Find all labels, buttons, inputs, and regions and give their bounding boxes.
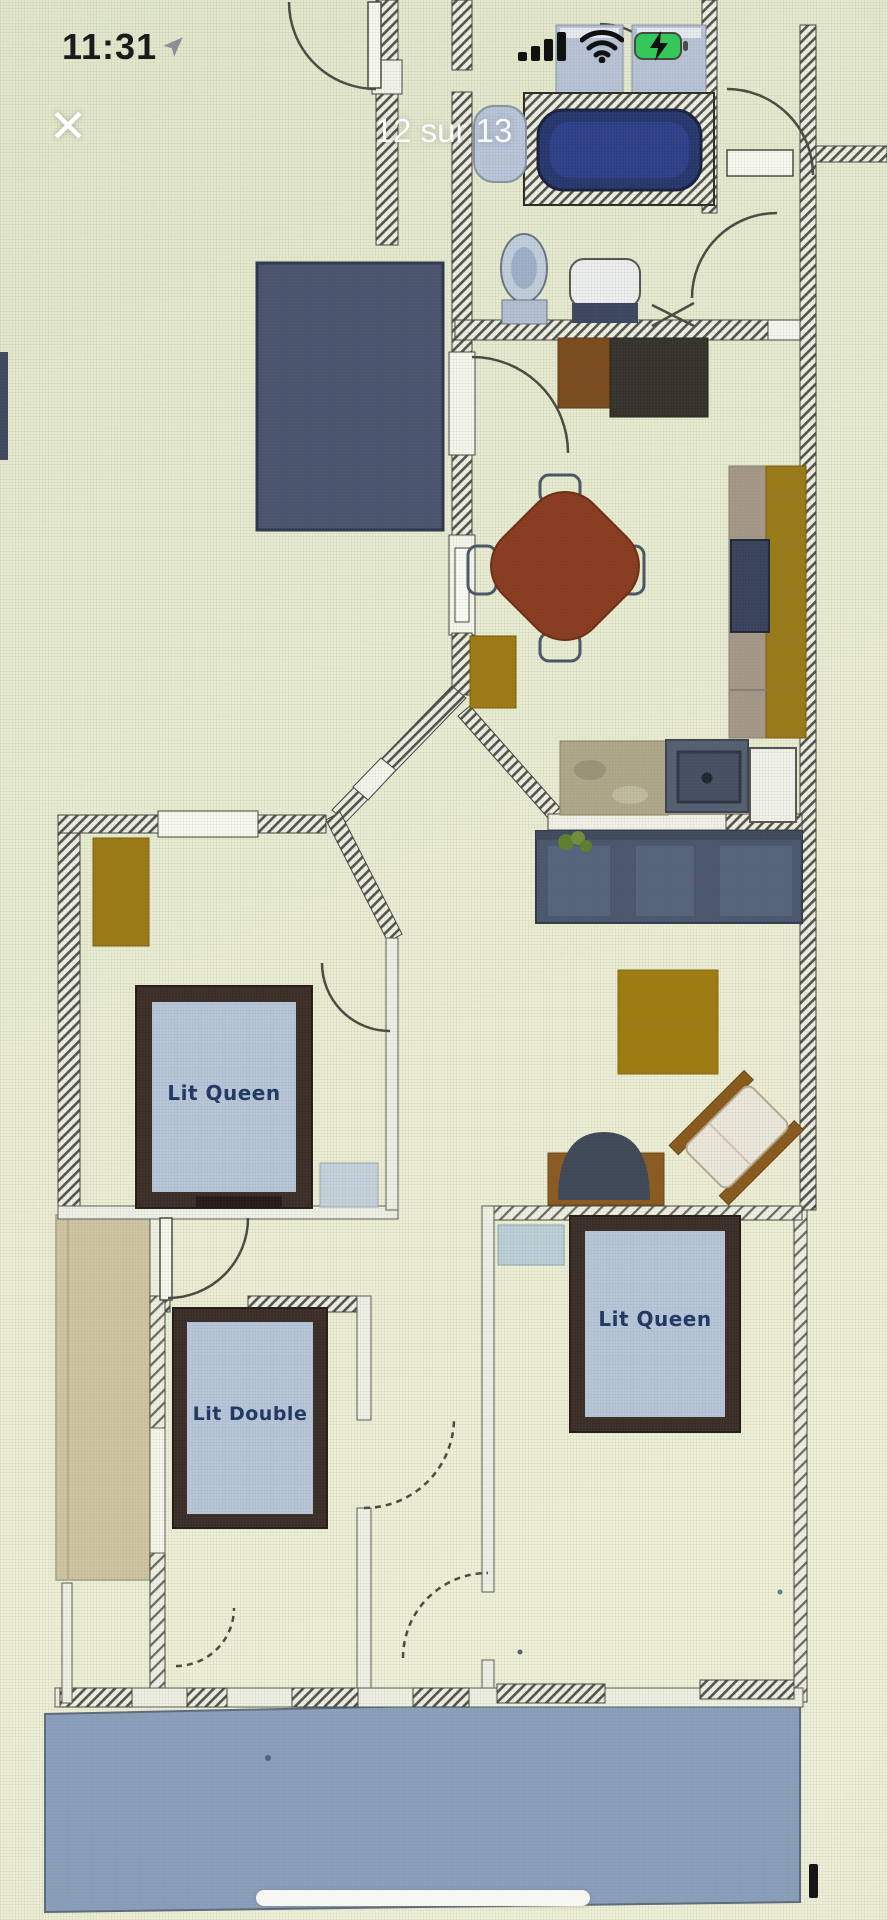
bedroom-2: Lit Queen [498, 1216, 740, 1432]
bed-3-label: Lit Double [193, 1403, 308, 1425]
bed-1-label: Lit Queen [167, 1081, 280, 1105]
wifi-icon [580, 29, 624, 63]
dining-table [474, 475, 655, 656]
lounge-corner [548, 970, 803, 1205]
location-arrow-icon [160, 34, 186, 60]
nightstand-2 [498, 1225, 564, 1265]
desk-chair [558, 1132, 650, 1200]
toilet-tank [502, 300, 547, 324]
status-bar: 11:31 [0, 0, 887, 90]
bedside-shelf [320, 1163, 378, 1207]
tv-screen [731, 540, 769, 632]
floor-plan-image: Lit Queen Lit Queen Lit Double [0, 0, 887, 1920]
scroll-indicator [809, 1864, 818, 1898]
bed-2-label: Lit Queen [598, 1307, 711, 1331]
status-time: 11:31 [62, 26, 157, 68]
kitchen [536, 740, 802, 923]
lounge-chair [683, 1083, 790, 1190]
dishwasher [750, 748, 796, 822]
media-unit-gold [766, 466, 806, 738]
photo-viewer-screen[interactable]: Lit Queen Lit Queen Lit Double 11:31 [0, 0, 887, 1920]
rug-gold [618, 970, 718, 1074]
navy-room-block [257, 263, 443, 530]
battery-charging-icon [634, 31, 690, 61]
hall-cabinet-brown [558, 338, 610, 408]
bedroom-1: Lit Queen [93, 838, 378, 1208]
sink-drain [702, 773, 713, 784]
home-indicator[interactable] [256, 1890, 590, 1906]
living-dining [468, 338, 806, 738]
left-edge-sliver [0, 352, 8, 460]
left-balcony [56, 1215, 150, 1580]
dresser-gold [93, 838, 149, 946]
hall-unit-charcoal [610, 338, 708, 417]
kitchen-counter [560, 741, 668, 815]
vanity-sink [570, 259, 640, 307]
side-cabinet-gold [470, 636, 516, 708]
photo-counter-title: 12 sur 13 [0, 112, 887, 150]
cellular-signal-icon [516, 28, 570, 64]
bedroom-3: Lit Double [173, 1308, 327, 1528]
